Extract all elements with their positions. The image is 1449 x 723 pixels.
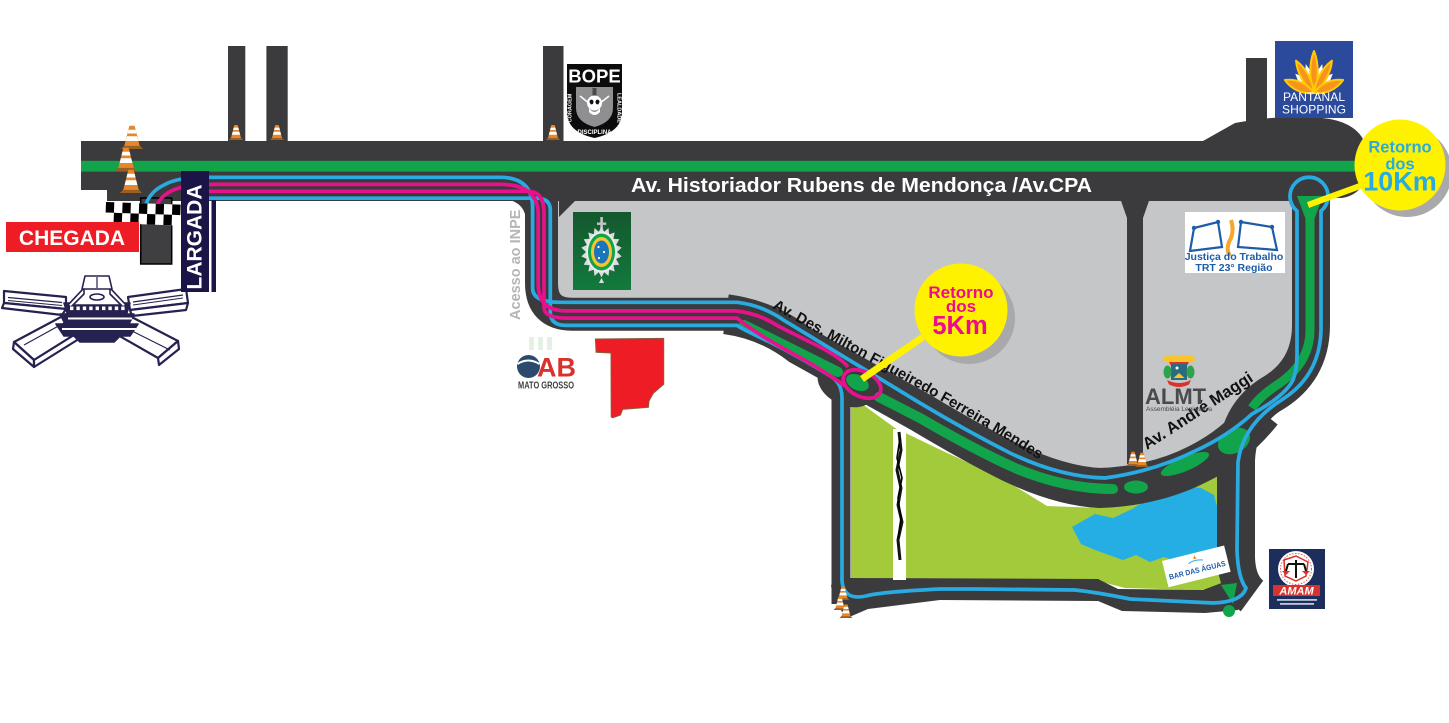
- svg-text:CHEGADA: CHEGADA: [19, 227, 125, 250]
- svg-text:BOPE: BOPE: [568, 66, 620, 87]
- svg-text:CORAGEM: CORAGEM: [568, 93, 574, 122]
- svg-text:SHOPPING: SHOPPING: [1282, 103, 1346, 117]
- svg-text:DISCIPLINA: DISCIPLINA: [577, 130, 612, 136]
- svg-text:AB: AB: [537, 353, 576, 383]
- svg-text:TRT 23° Região: TRT 23° Região: [1195, 262, 1272, 274]
- svg-text:Retorno: Retorno: [1368, 139, 1431, 157]
- svg-text:AMAM: AMAM: [1278, 586, 1314, 598]
- svg-text:Assembléia Legislativa: Assembléia Legislativa: [1146, 406, 1213, 413]
- svg-text:10Km: 10Km: [1363, 167, 1437, 197]
- svg-text:LARGADA: LARGADA: [184, 185, 207, 290]
- svg-text:Acesso ao INPE: Acesso ao INPE: [508, 209, 524, 320]
- svg-text:LEALDADE: LEALDADE: [616, 93, 622, 123]
- svg-text:MATO GROSSO: MATO GROSSO: [518, 381, 574, 392]
- svg-text:5Km: 5Km: [932, 312, 987, 340]
- svg-text:Av. Historiador Rubens de Mend: Av. Historiador Rubens de Mendonça /Av.C…: [631, 174, 1092, 197]
